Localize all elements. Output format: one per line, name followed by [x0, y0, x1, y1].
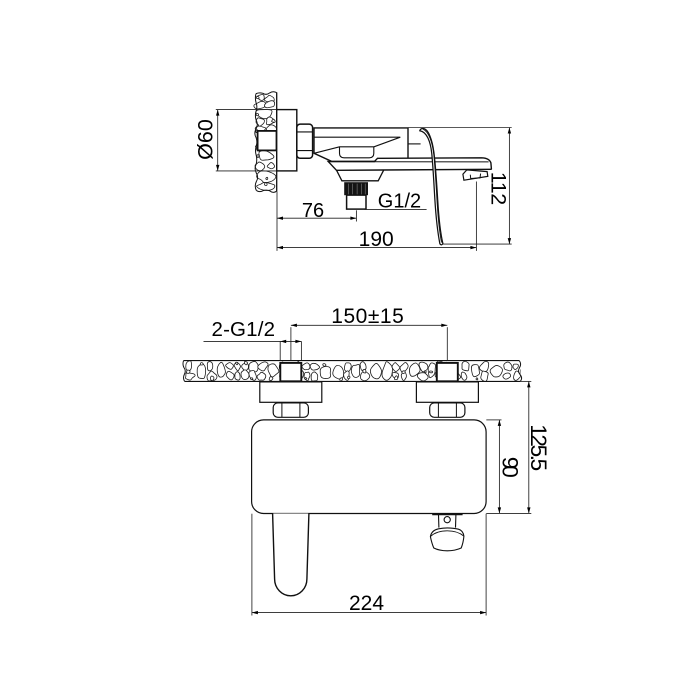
svg-text:150±15: 150±15 — [331, 305, 404, 328]
svg-text:190: 190 — [359, 228, 394, 251]
svg-text:224: 224 — [349, 592, 384, 615]
svg-text:112: 112 — [486, 172, 510, 206]
svg-text:2-G1/2: 2-G1/2 — [212, 318, 276, 341]
svg-text:90: 90 — [497, 457, 522, 478]
svg-text:Ø60: Ø60 — [194, 119, 218, 160]
svg-text:G1/2: G1/2 — [378, 190, 421, 212]
svg-text:125.5: 125.5 — [526, 424, 551, 471]
svg-text:76: 76 — [302, 200, 324, 222]
